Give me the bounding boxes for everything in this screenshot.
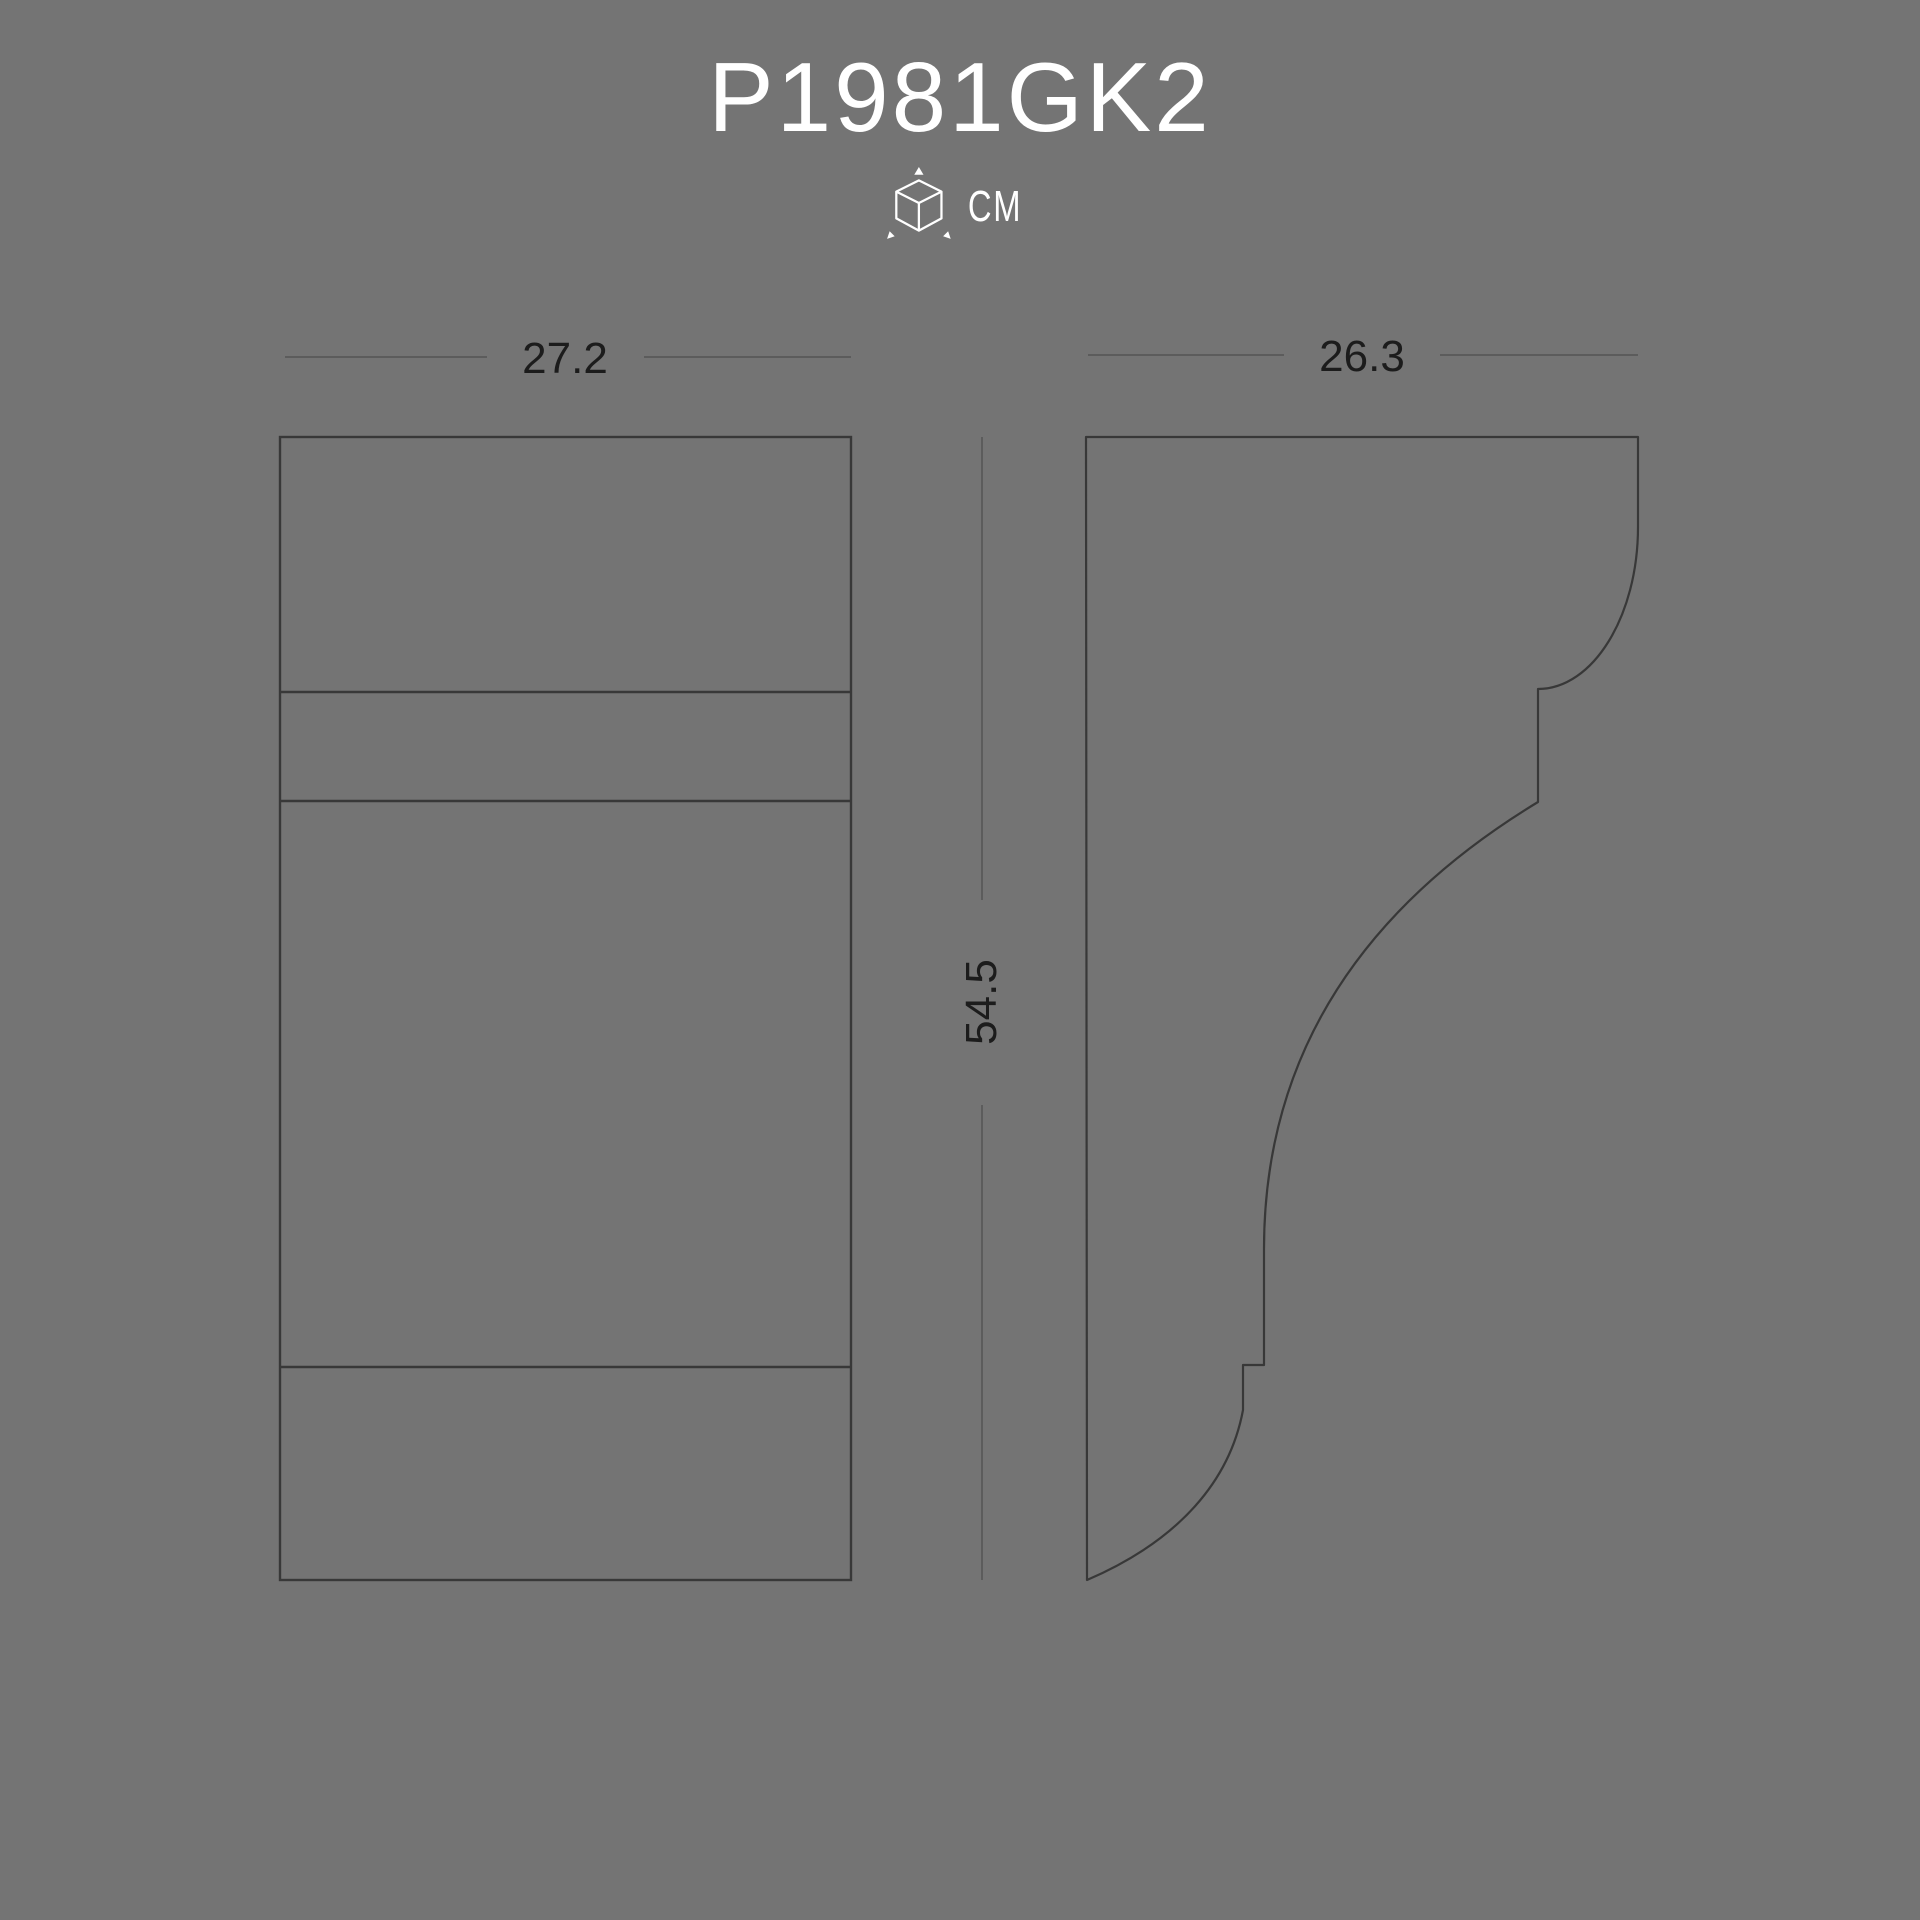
side-depth-dimension-label: 26.3 bbox=[1319, 332, 1405, 382]
product-dimension-diagram: P1981GK2 CM bbox=[0, 0, 1920, 1920]
side-profile-drawing bbox=[1086, 437, 1638, 1580]
front-view-drawing bbox=[280, 437, 851, 1580]
height-dimension-label: 54.5 bbox=[957, 959, 1007, 1045]
front-width-dimension-label: 27.2 bbox=[522, 334, 608, 384]
